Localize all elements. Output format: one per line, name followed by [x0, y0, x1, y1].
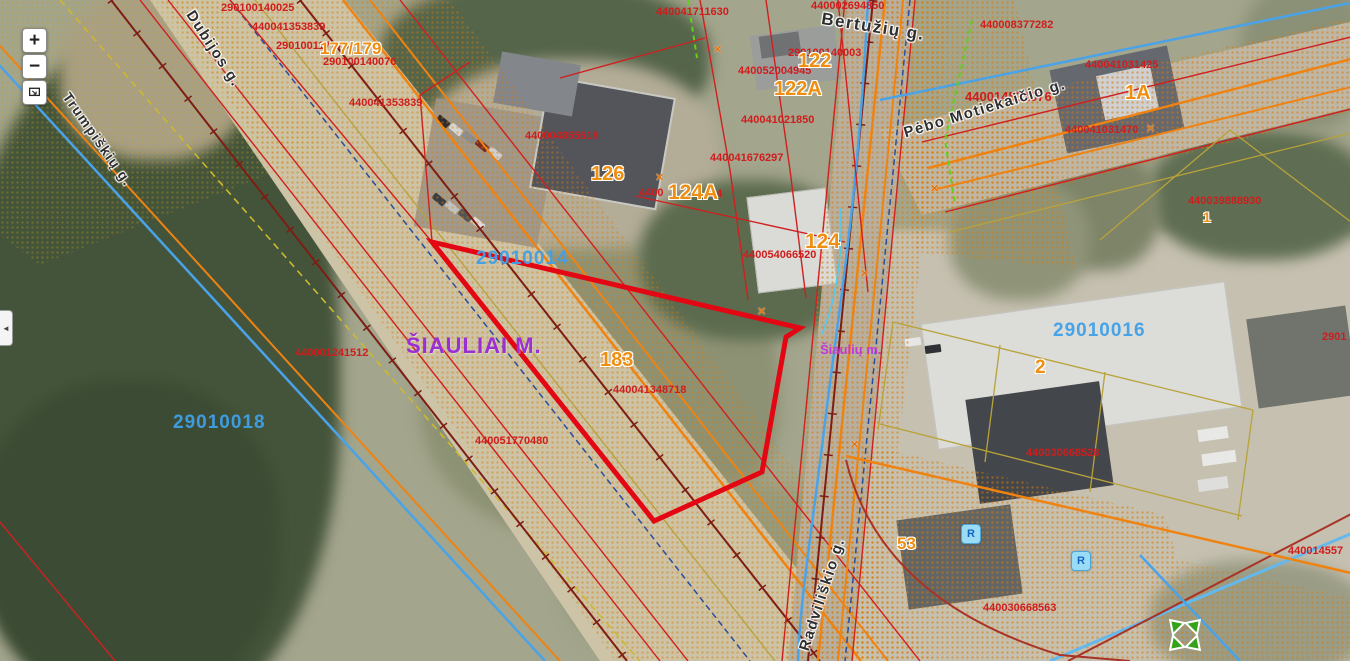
block-number: 29010016	[1053, 321, 1146, 340]
house-number: 183	[600, 350, 633, 370]
parcel-number: 440041676297	[710, 153, 783, 164]
full-extent-button[interactable]	[22, 80, 47, 105]
zoom-out-button[interactable]: −	[22, 54, 47, 79]
house-number: 124A	[668, 182, 718, 203]
parcel-number-clipped: 440014557	[1288, 546, 1343, 557]
parcel-number: 440041348718	[613, 385, 686, 396]
parcel-number: 440030668563	[983, 603, 1056, 614]
street-name: Radviliškio g.	[797, 536, 848, 653]
parcel-number: 440008377282	[980, 20, 1053, 31]
parcel-number: 440039888930	[1188, 196, 1261, 207]
parcel-number: 290100140025	[221, 3, 294, 14]
house-number: 2	[1035, 358, 1046, 377]
house-number: 122A	[774, 79, 822, 99]
parcel-number: 440041353839	[349, 98, 422, 109]
street-name: Trumpiškių g.	[61, 90, 136, 189]
house-number: 1	[1203, 210, 1211, 224]
house-number: 122	[798, 51, 831, 71]
map-viewport[interactable]: 2901001400254400413538392901001177752901…	[0, 0, 1350, 661]
parcel-number: 440041711630	[656, 7, 729, 18]
street-name: Pėbo Motiekaičio g.	[902, 77, 1068, 141]
house-number: 1A	[1125, 83, 1151, 103]
parcel-number-fragment: 4400	[639, 188, 663, 199]
parcel-number: 440041031425	[1085, 60, 1158, 71]
parcel-number: 440041021850	[741, 115, 814, 126]
parcel-number: 440041353839	[252, 22, 325, 33]
street-name: Bertužių g.	[820, 10, 926, 43]
survey-marker-icon: ✕	[713, 43, 722, 56]
collapse-panel-tab[interactable]: ◄	[0, 310, 13, 346]
survey-marker-icon: ✕	[757, 305, 766, 318]
survey-marker-icon: ✕	[930, 182, 939, 195]
parcel-number: 440051770480	[475, 436, 548, 447]
block-number: 29010014	[476, 249, 569, 268]
city-name: ŠIAULIAI M.	[406, 335, 542, 357]
house-number: 53	[897, 535, 916, 552]
street-name: Dubijos g.	[183, 8, 243, 90]
parcel-number: 440001241512	[295, 348, 368, 359]
zoom-in-button[interactable]: +	[22, 28, 47, 53]
house-number: 124	[805, 231, 840, 252]
map-labels-layer: 2901001400254400413538392901001177752901…	[0, 0, 1350, 661]
transit-stop-icon: R	[1071, 551, 1091, 571]
survey-marker-icon: ✕	[860, 267, 869, 280]
house-number: 126	[591, 164, 624, 184]
block-number: 29010018	[173, 413, 266, 432]
survey-marker-icon: ✕	[655, 171, 664, 184]
parcel-number-clipped: 2901	[1322, 332, 1346, 343]
survey-marker-icon: ✕	[850, 438, 859, 451]
city-name-small: Šiaulių m.	[820, 343, 881, 356]
survey-marker-icon: ✕	[1146, 122, 1155, 135]
parcel-number: 440041031470	[1065, 125, 1138, 136]
full-extent-icon	[29, 85, 40, 100]
transit-stop-icon: R	[961, 524, 981, 544]
junction-arrows-icon	[1162, 612, 1208, 658]
parcel-number: 290100140076	[323, 57, 396, 68]
house-number: 177/179	[320, 40, 381, 57]
parcel-number: 440004855618	[525, 131, 598, 142]
parcel-number: 440030668528	[1026, 448, 1099, 459]
